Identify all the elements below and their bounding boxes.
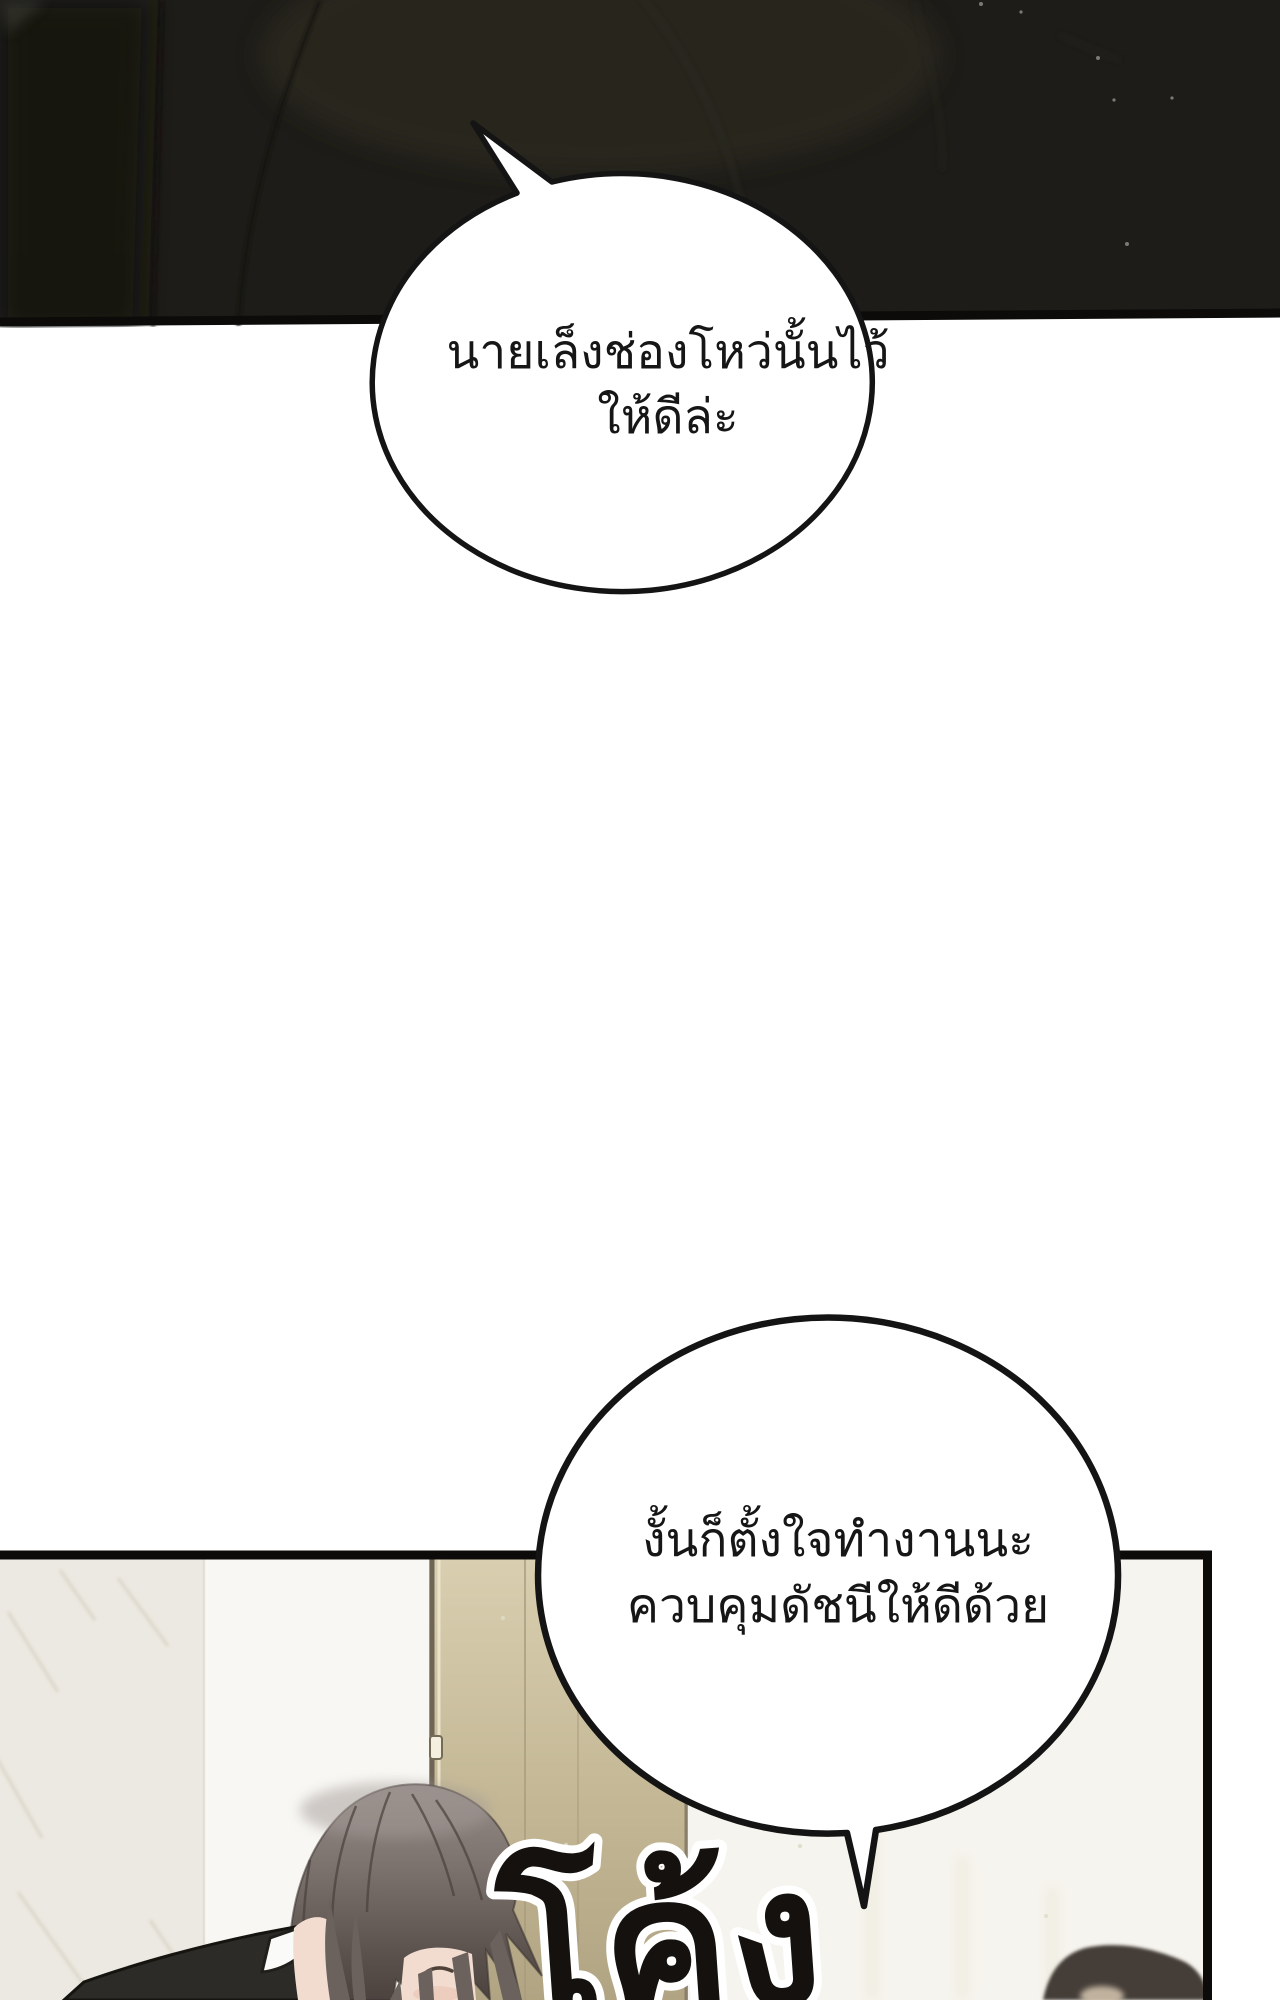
marble-wall — [0, 1559, 204, 2000]
bubble-1-text: นายเล็งช่องโหว่นั้นไว้ ให้ดีล่ะ — [418, 320, 918, 450]
comic-page: โค้ง นายเล็งช่องโหว่นั้นไว้ ให้ดีล่ะ งั้… — [0, 0, 1280, 2000]
bubble-2-line-1: งั้นก็ตั้งใจทำงานนะ — [593, 1508, 1083, 1574]
hair-highlight — [300, 1782, 490, 1838]
comic-art: โค้ง — [0, 0, 1280, 2000]
bubble-2-text: งั้นก็ตั้งใจทำงานนะ ควบคุมดัชนีให้ดีด้วย — [593, 1508, 1083, 1640]
sfx-text: โค้ง — [491, 1825, 829, 2000]
bubble-1-line-2: ให้ดีล่ะ — [418, 385, 918, 450]
door-handle-plate — [430, 1736, 442, 1759]
dark-fold-left — [0, 0, 150, 330]
bubble-2-line-2: ควบคุมดัชนีให้ดีด้วย — [593, 1574, 1083, 1640]
bubble-1-line-1: นายเล็งช่องโหว่นั้นไว้ — [418, 320, 918, 385]
